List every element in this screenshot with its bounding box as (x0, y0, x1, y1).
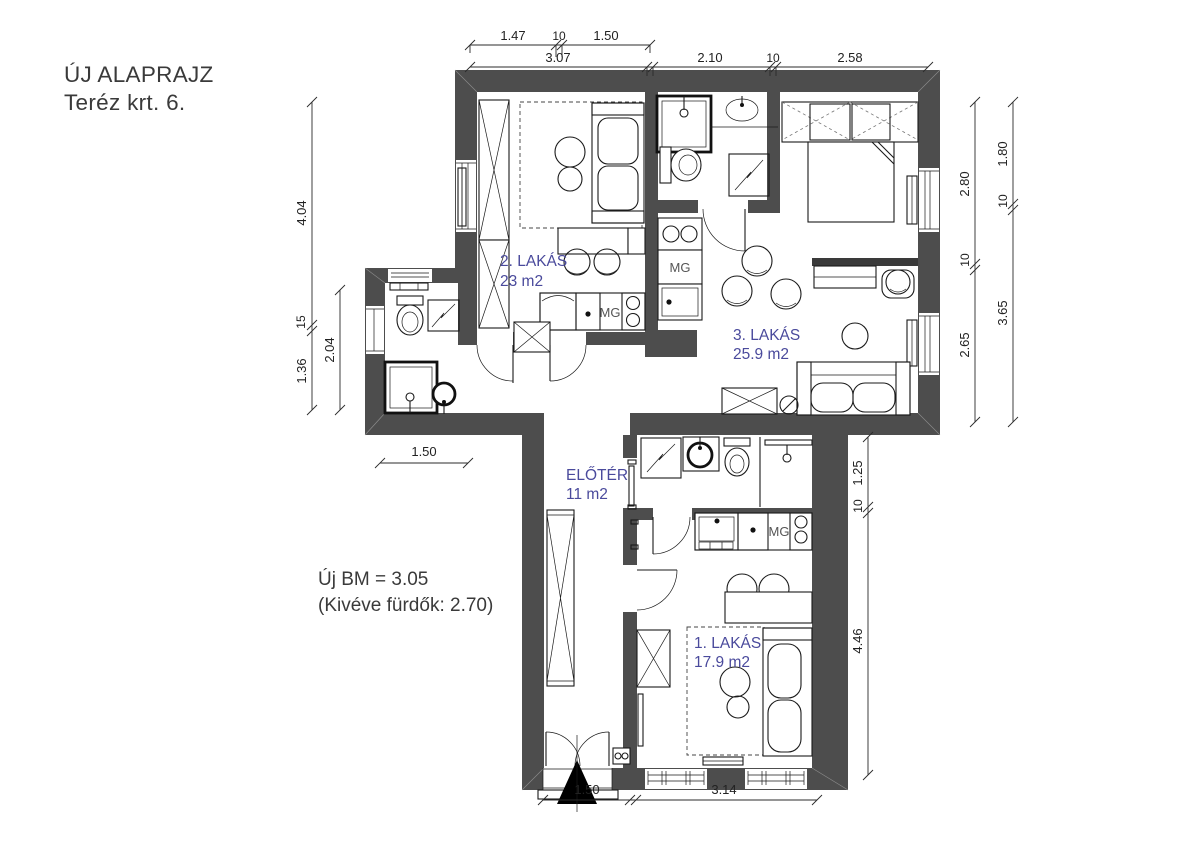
toilet (397, 296, 423, 335)
dining-table (725, 592, 812, 623)
dim-value: 10 (996, 194, 1010, 208)
room-label-3lakas-area: 25.9 m2 (733, 346, 789, 363)
window-stem-bottom-2 (745, 769, 807, 789)
dim-line-annex-bottom (375, 458, 473, 468)
round-table (842, 323, 868, 349)
dim-value: 2.58 (837, 50, 862, 65)
window-right-1 (907, 168, 939, 232)
furniture-eloter (547, 510, 574, 686)
wall-top (455, 70, 940, 92)
dim-value: 2.04 (322, 337, 337, 362)
room-label-1lakas-area: 17.9 m2 (694, 654, 750, 671)
dim-value: 2.65 (957, 332, 972, 357)
door-kitchen-1lakas (631, 517, 690, 554)
door-hall-a (477, 345, 513, 383)
dim-value: 1.80 (995, 141, 1010, 166)
side-table (555, 137, 585, 167)
furniture-3lakas (722, 102, 918, 415)
dim-value: 2.10 (697, 50, 722, 65)
console-shelf (812, 258, 918, 266)
room-label-2lakas-area: 23 m2 (500, 273, 543, 290)
wall-bottom-left (365, 413, 544, 435)
dining-chair (722, 276, 752, 306)
wardrobe (479, 100, 509, 328)
washbasin (683, 437, 719, 471)
dining-chair (886, 270, 910, 294)
dim-value: 1.50 (574, 782, 599, 797)
toilet (724, 438, 750, 476)
wall-block-bottom (630, 413, 940, 435)
shower-screen (729, 154, 769, 196)
shower-screen (428, 300, 459, 331)
window-right-2 (907, 313, 939, 375)
dim-value: 3.65 (995, 300, 1010, 325)
shower-tray (657, 96, 711, 152)
appliance-cell (658, 284, 702, 320)
dining-chair (742, 246, 772, 276)
wall-right (918, 70, 940, 435)
wall-bath-bottom-b (748, 200, 780, 213)
dim-value: 10 (851, 499, 865, 513)
dim-value: 1.47 (500, 28, 525, 43)
sofa-bed (592, 103, 644, 223)
title-block: ÚJ ALAPRAJZ Teréz krt. 6. (64, 62, 214, 115)
dim-value: 3.14 (711, 782, 736, 797)
dim-value: 1.25 (850, 460, 865, 485)
shaft-box (514, 322, 550, 352)
floor-outlet (780, 396, 798, 414)
wall-kitchen-stub (637, 508, 653, 520)
note-line-2: (Kivéve fürdők: 2.70) (318, 595, 493, 616)
side-table-small (727, 696, 749, 718)
dining-chair (771, 279, 801, 309)
plan-title: ÚJ ALAPRAJZ (64, 62, 214, 87)
sofa (763, 628, 812, 756)
bathroom-middle (657, 96, 778, 196)
wall-annexbath-right (458, 283, 477, 345)
dim-value: 1.50 (411, 444, 436, 459)
dim-value: 10 (958, 253, 972, 267)
dim-value: 10 (766, 51, 780, 65)
radiator (703, 757, 743, 765)
shower-rail (765, 440, 812, 462)
wall-panel (638, 694, 643, 746)
side-table (720, 667, 750, 697)
bathroom-1lakas (641, 437, 812, 507)
dim-value: 4.46 (850, 628, 865, 653)
intercom-unit (613, 748, 630, 764)
storage-chest (722, 388, 777, 414)
kitchenette (540, 293, 645, 330)
dim-value: 4.04 (294, 200, 309, 225)
wardrobe-over-bed (782, 102, 918, 142)
room-label-2lakas-name: 2. LAKÁS (500, 253, 567, 270)
double-sink (658, 218, 702, 250)
hall-wardrobe (547, 510, 574, 686)
washing-machine-label: MG (670, 260, 691, 275)
wall-corr-c (623, 612, 637, 768)
washing-machine-label: MG (600, 305, 621, 320)
wall-shaft-block (645, 330, 697, 357)
plan-address: Teréz krt. 6. (64, 90, 185, 115)
door-hall-b (550, 345, 586, 381)
wall-stem-left (522, 435, 544, 790)
dim-value: 10 (552, 29, 566, 43)
wall-corr-b (623, 508, 637, 565)
window-stem-bottom-1 (645, 769, 707, 789)
room-label-1lakas-name: 1. LAKÁS (694, 635, 761, 652)
room-label-eloter-name: ELŐTÉR (566, 467, 628, 484)
sofa (797, 362, 910, 415)
double-bed (808, 142, 894, 222)
dim-value: 1.36 (294, 358, 309, 383)
room-label-eloter-area: 11 m2 (566, 486, 608, 503)
note-line-1: Új BM = 3.05 (318, 568, 428, 590)
window-annex-left-niche (366, 306, 384, 354)
window-annex-top (388, 269, 432, 290)
window-left (456, 160, 476, 232)
note-block: Új BM = 3.05 (Kivéve fürdők: 2.70) (318, 568, 493, 616)
floorplan-canvas: 1.47 10 1.50 3.07 2.10 10 2.58 4.04 15 1… (0, 0, 1191, 842)
side-table-small (558, 167, 582, 191)
shower-tray (385, 362, 437, 413)
washing-machine-label: MG (769, 524, 790, 539)
wall-bath-bottom-a (658, 200, 698, 213)
wall-corr-a (623, 435, 637, 458)
wall-stem-right (812, 435, 848, 768)
kitchen-1lakas (695, 513, 812, 550)
dim-value: 2.80 (957, 171, 972, 196)
room-label-3lakas-name: 3. LAKÁS (733, 327, 800, 344)
door-bathroom-leaf (628, 460, 636, 509)
shower-screen (641, 438, 681, 478)
toilet (660, 147, 701, 183)
bathroom-annex (385, 296, 459, 414)
door-bath-middle (703, 209, 745, 251)
dim-value: 1.50 (593, 28, 618, 43)
door-corridor-1lakas (637, 570, 677, 610)
dim-value: 3.07 (545, 50, 570, 65)
dim-value: 15 (294, 315, 308, 329)
drawer-unit (814, 266, 876, 288)
wardrobe (637, 630, 670, 687)
